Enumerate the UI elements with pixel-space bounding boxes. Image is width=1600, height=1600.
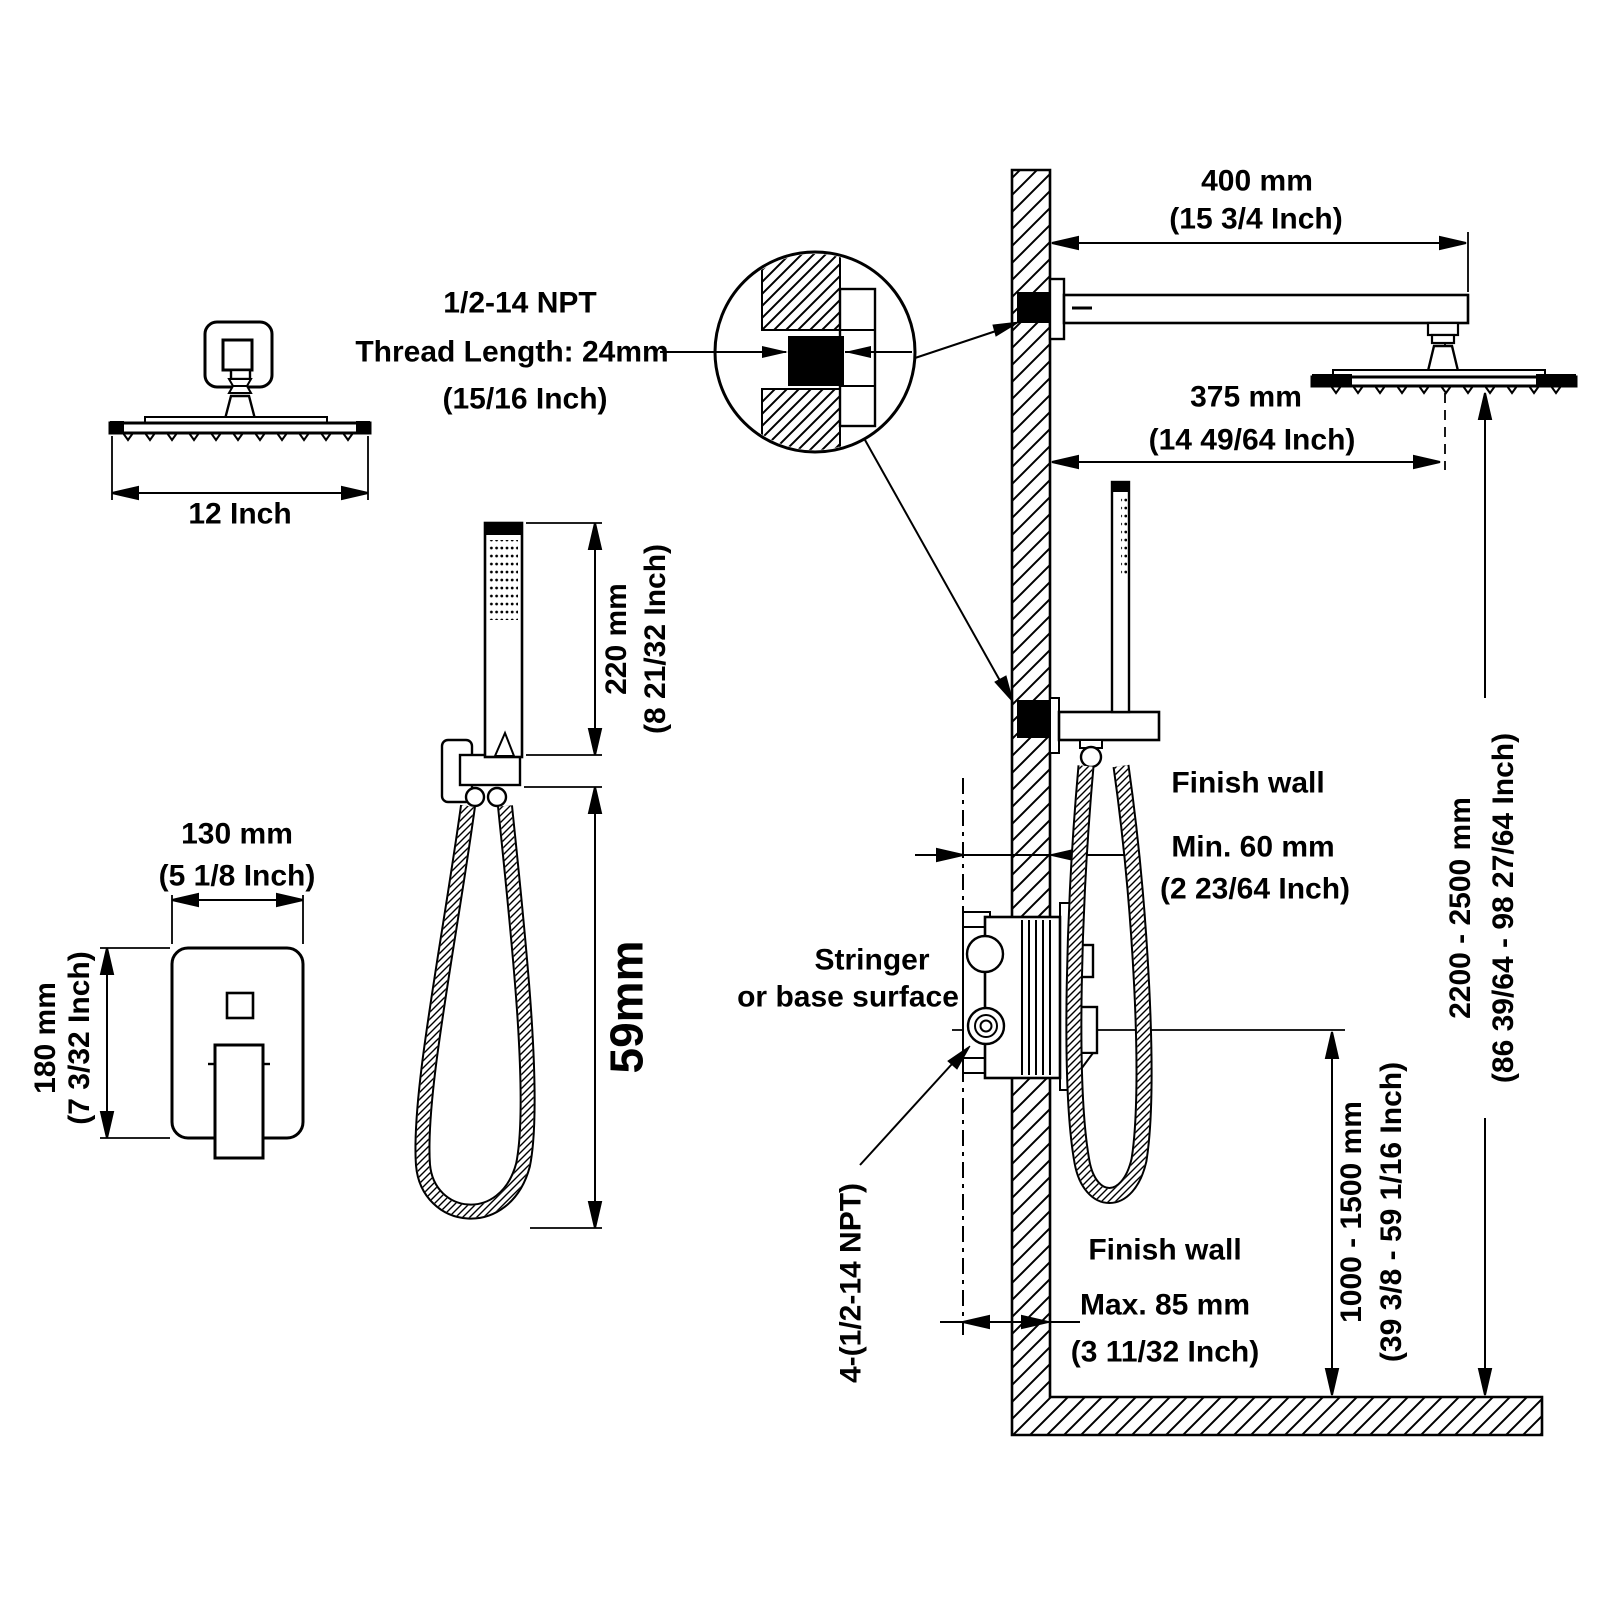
shower-arm-assembly: [1017, 279, 1576, 393]
handshower-kit-view: [442, 523, 522, 806]
finish-wall-upper-inch: (2 23/64 Inch): [1160, 870, 1350, 908]
holder-bar: [1059, 712, 1159, 740]
valve-height-inch: (39 3/8 - 59 1/16 Inch): [1372, 1062, 1412, 1362]
mount-height-mm: 2200 - 2500 mm: [1439, 733, 1482, 1083]
hose-left: [422, 806, 527, 1212]
spray-face-dots: [489, 540, 518, 620]
trim-height-inch: (7 3/32 Inch): [63, 951, 97, 1124]
finish-wall-lower-mm: Max. 85 mm: [1080, 1286, 1250, 1324]
finish-wall-lower-title: Finish wall: [1088, 1231, 1241, 1269]
hose-nut: [1081, 747, 1101, 767]
arm-length-inch: (15 3/4 Inch): [1169, 200, 1342, 238]
lever-handle: [215, 1045, 263, 1158]
thread-detail-circle: [660, 252, 915, 474]
thread-note-line1: 1/2-14 NPT: [443, 284, 596, 322]
hose-right: [1074, 766, 1144, 1196]
stringer-line1: Stringer: [814, 941, 929, 979]
ports-label: 4-(1/2-14 NPT): [832, 1183, 870, 1383]
arm-length-mm: 400 mm: [1201, 162, 1313, 200]
stringer-line2: or base surface: [737, 978, 959, 1016]
overhead-width-label: 12 Inch: [188, 495, 291, 533]
trim-width-mm: 130 mm: [181, 815, 293, 853]
valve-height-label: 1000 - 1500 mm (39 3/8 - 59 1/16 Inch): [1332, 1062, 1412, 1362]
overhead-head-view: [110, 322, 370, 440]
trim-height-label: 180 mm (7 3/32 Inch): [29, 951, 97, 1124]
thread-note-line3: (15/16 Inch): [442, 380, 607, 418]
finish-wall-upper-mm: Min. 60 mm: [1171, 828, 1334, 866]
thread-note-line2: Thread Length: 24mm: [355, 333, 668, 371]
arm-escutcheon: [1050, 279, 1064, 339]
finish-wall-lower-inch: (3 11/32 Inch): [1071, 1333, 1259, 1371]
holder-escutcheon: [1050, 698, 1059, 753]
head-offset-inch: (14 49/64 Inch): [1149, 421, 1356, 459]
valve-height-mm: 1000 - 1500 mm: [1332, 1062, 1372, 1362]
thread-plug-detail: [788, 336, 844, 386]
valve-trim-view: [172, 948, 303, 1158]
wand-length-label: 220 mm (8 21/32 Inch): [597, 544, 675, 734]
installation-diagram: 400 mm (15 3/4 Inch) 375 mm (14 49/64 In…: [0, 0, 1600, 1600]
shower-arm: [1064, 295, 1468, 323]
hose-drop-label: 59mm: [598, 941, 656, 1074]
mount-height-inch: (86 39/64 - 98 27/64 Inch): [1482, 733, 1525, 1083]
arm-wall-connector: [1017, 292, 1050, 323]
wand-length-mm: 220 mm: [597, 544, 636, 734]
valve-top-port: [967, 936, 1003, 972]
holder-wall-connector: [1017, 700, 1050, 738]
diverter-button: [227, 993, 253, 1018]
rain-head-side: [110, 423, 370, 433]
trim-width-inch: (5 1/8 Inch): [159, 857, 316, 895]
wand-length-inch: (8 21/32 Inch): [636, 544, 675, 734]
holder-arm: [460, 755, 520, 785]
mount-height-label: 2200 - 2500 mm (86 39/64 - 98 27/64 Inch…: [1439, 733, 1525, 1083]
head-offset-mm: 375 mm: [1190, 378, 1302, 416]
trim-height-mm: 180 mm: [29, 951, 63, 1124]
finish-wall-upper-title: Finish wall: [1171, 764, 1324, 802]
